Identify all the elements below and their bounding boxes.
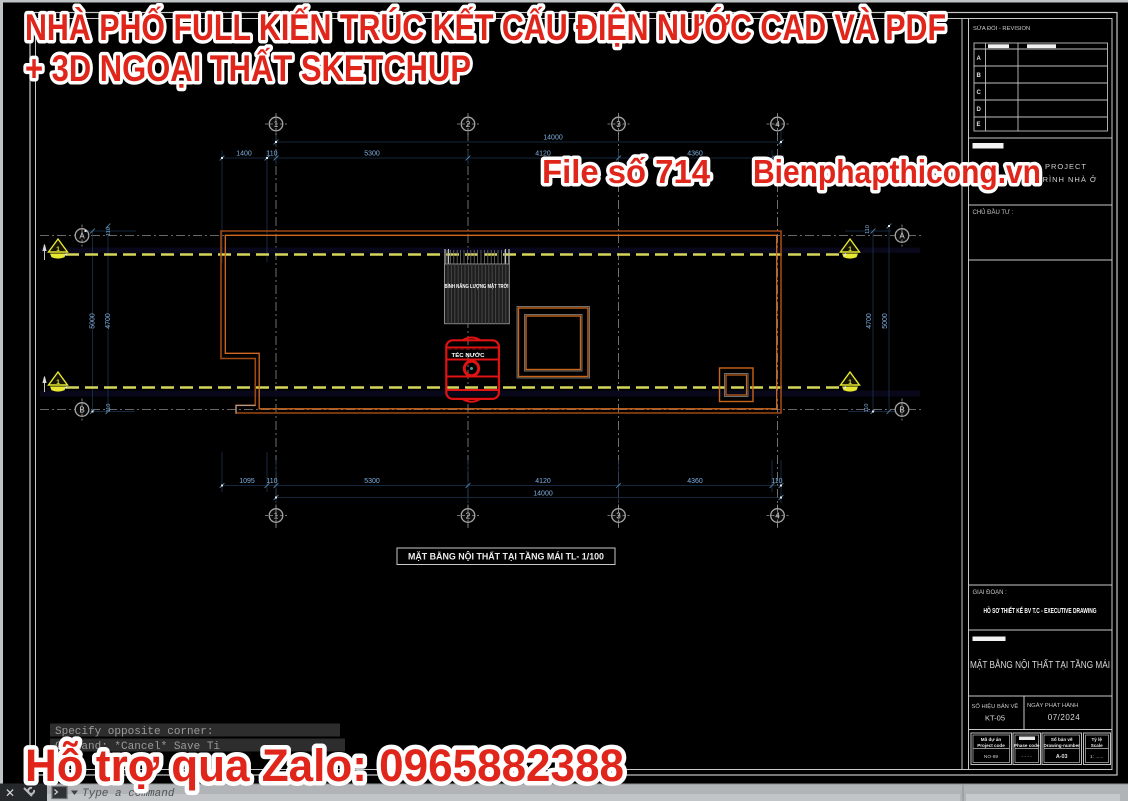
- svg-text:- - - -: - - - -: [1022, 755, 1033, 760]
- svg-text:14000: 14000: [543, 135, 563, 142]
- svg-text:SỐ HIỆU BẢN VẼ: SỐ HIỆU BẢN VẼ: [972, 702, 1019, 710]
- svg-text:110: 110: [865, 225, 871, 234]
- svg-text:5000: 5000: [882, 313, 889, 329]
- svg-text:1400: 1400: [236, 151, 252, 158]
- svg-text:1: 1: [56, 246, 60, 253]
- svg-text:TRÌNH NHÀ Ở: TRÌNH NHÀ Ở: [1037, 175, 1097, 184]
- svg-text:A: A: [977, 56, 982, 62]
- svg-text:A-03: A-03: [1056, 754, 1068, 760]
- svg-text:Drawing-number: Drawing-number: [1043, 743, 1080, 748]
- svg-text:✕: ✕: [5, 786, 15, 800]
- svg-text:CHỦ ĐẦU TƯ :: CHỦ ĐẦU TƯ :: [973, 209, 1014, 216]
- svg-text:Hỗ trợ qua Zalo: 0965882388: Hỗ trợ qua Zalo: 0965882388: [25, 740, 624, 791]
- svg-text:+ 3D NGOẠI THẤT SKETCHUP: + 3D NGOẠI THẤT SKETCHUP: [25, 48, 471, 89]
- svg-text:07/2024: 07/2024: [1048, 713, 1080, 722]
- svg-text:Mã dự án: Mã dự án: [981, 737, 1002, 742]
- svg-text:Project code: Project code: [977, 743, 1005, 748]
- svg-text:Specify opposite corner:: Specify opposite corner:: [55, 726, 213, 738]
- svg-text:GIAI ĐOẠN :: GIAI ĐOẠN :: [973, 590, 1008, 596]
- svg-text:Scale: Scale: [1091, 743, 1103, 748]
- svg-text:110: 110: [864, 404, 870, 413]
- svg-text:14000: 14000: [533, 491, 553, 498]
- svg-text:1: 1: [56, 379, 60, 386]
- svg-text:4700: 4700: [866, 313, 873, 329]
- svg-text:D: D: [977, 107, 982, 113]
- svg-text:KT-05: KT-05: [985, 714, 1005, 723]
- svg-text:B: B: [977, 73, 982, 79]
- svg-text:4700: 4700: [105, 313, 112, 329]
- svg-text:BÌNH NĂNG LƯỢNG MẶT TRỜI: BÌNH NĂNG LƯỢNG MẶT TRỜI: [445, 282, 509, 290]
- svg-text:1095: 1095: [239, 478, 255, 485]
- svg-text:Bienphapthicong.vn: Bienphapthicong.vn: [753, 153, 1041, 190]
- svg-text:5300: 5300: [364, 151, 380, 158]
- svg-text:Số bản vẽ: Số bản vẽ: [1051, 736, 1073, 742]
- svg-text:PROJECT: PROJECT: [1045, 162, 1087, 171]
- svg-text:E: E: [977, 122, 981, 128]
- svg-text:NGÀY PHÁT HÀNH: NGÀY PHÁT HÀNH: [1027, 702, 1078, 709]
- svg-text:MẶT BẰNG NỘI THẤT TẠI TẦNG MÁI: MẶT BẰNG NỘI THẤT TẠI TẦNG MÁI: [970, 658, 1110, 671]
- svg-text:SỬA ĐỔI - REVISION: SỬA ĐỔI - REVISION: [973, 25, 1030, 32]
- svg-text:Phase code: Phase code: [1014, 743, 1040, 748]
- svg-text:1: 1: [848, 246, 852, 253]
- svg-text:MẶT BẰNG NỘI THẤT TẠI TẦNG MÁI: MẶT BẰNG NỘI THẤT TẠI TẦNG MÁI TL- 1/100: [408, 551, 604, 562]
- svg-text:1: 1: [848, 379, 852, 386]
- svg-text:5300: 5300: [364, 478, 380, 485]
- svg-text:File số 714: File số 714: [542, 153, 711, 190]
- svg-text:TÉC NƯỚC: TÉC NƯỚC: [452, 351, 485, 359]
- svg-text:4120: 4120: [535, 478, 551, 485]
- svg-text:NHÀ PHỐ FULL KIẾN TRÚC KẾT CẤU: NHÀ PHỐ FULL KIẾN TRÚC KẾT CẤU ĐIỆN NƯỚC…: [25, 6, 946, 48]
- svg-text:5000: 5000: [90, 313, 97, 329]
- svg-text:1: ......: 1: ......: [1090, 754, 1103, 760]
- svg-text:NO-69: NO-69: [984, 754, 998, 760]
- svg-text:C: C: [977, 90, 982, 96]
- svg-text:Tỷ lệ: Tỷ lệ: [1091, 737, 1102, 742]
- svg-text:4360: 4360: [687, 478, 703, 485]
- svg-text:110: 110: [106, 227, 112, 236]
